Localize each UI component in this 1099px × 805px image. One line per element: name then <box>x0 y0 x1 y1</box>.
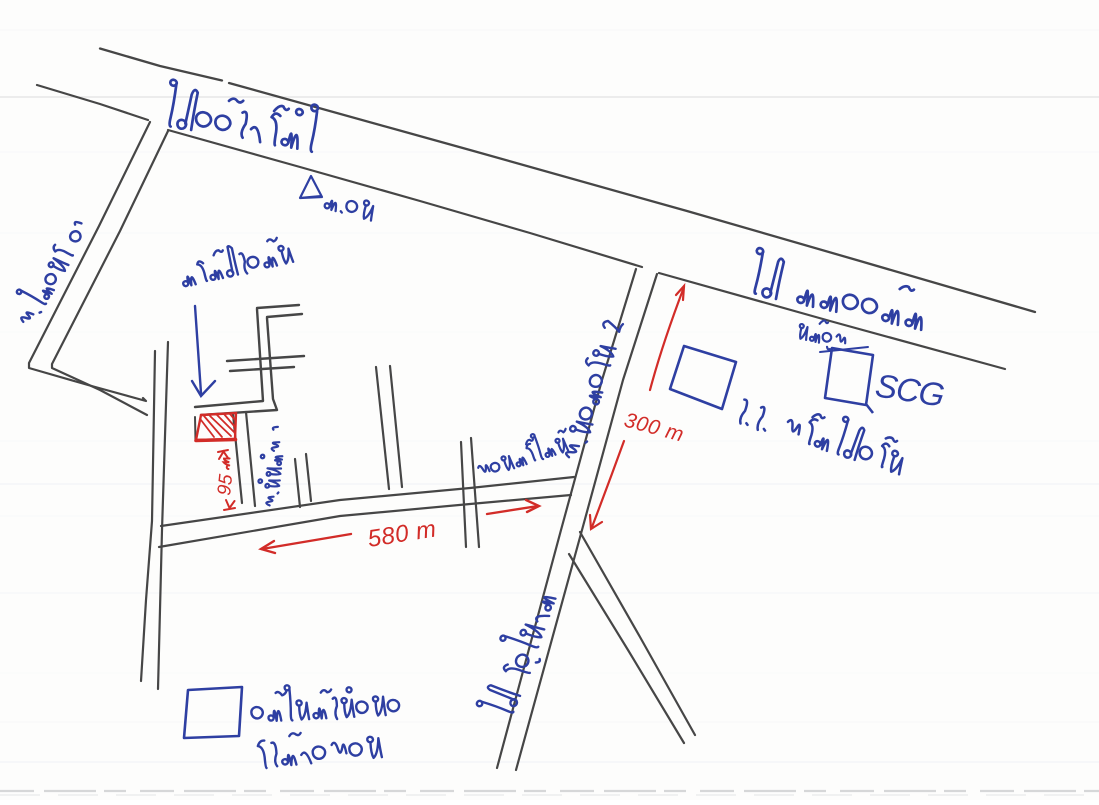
svg-text:95: 95 <box>214 473 237 497</box>
